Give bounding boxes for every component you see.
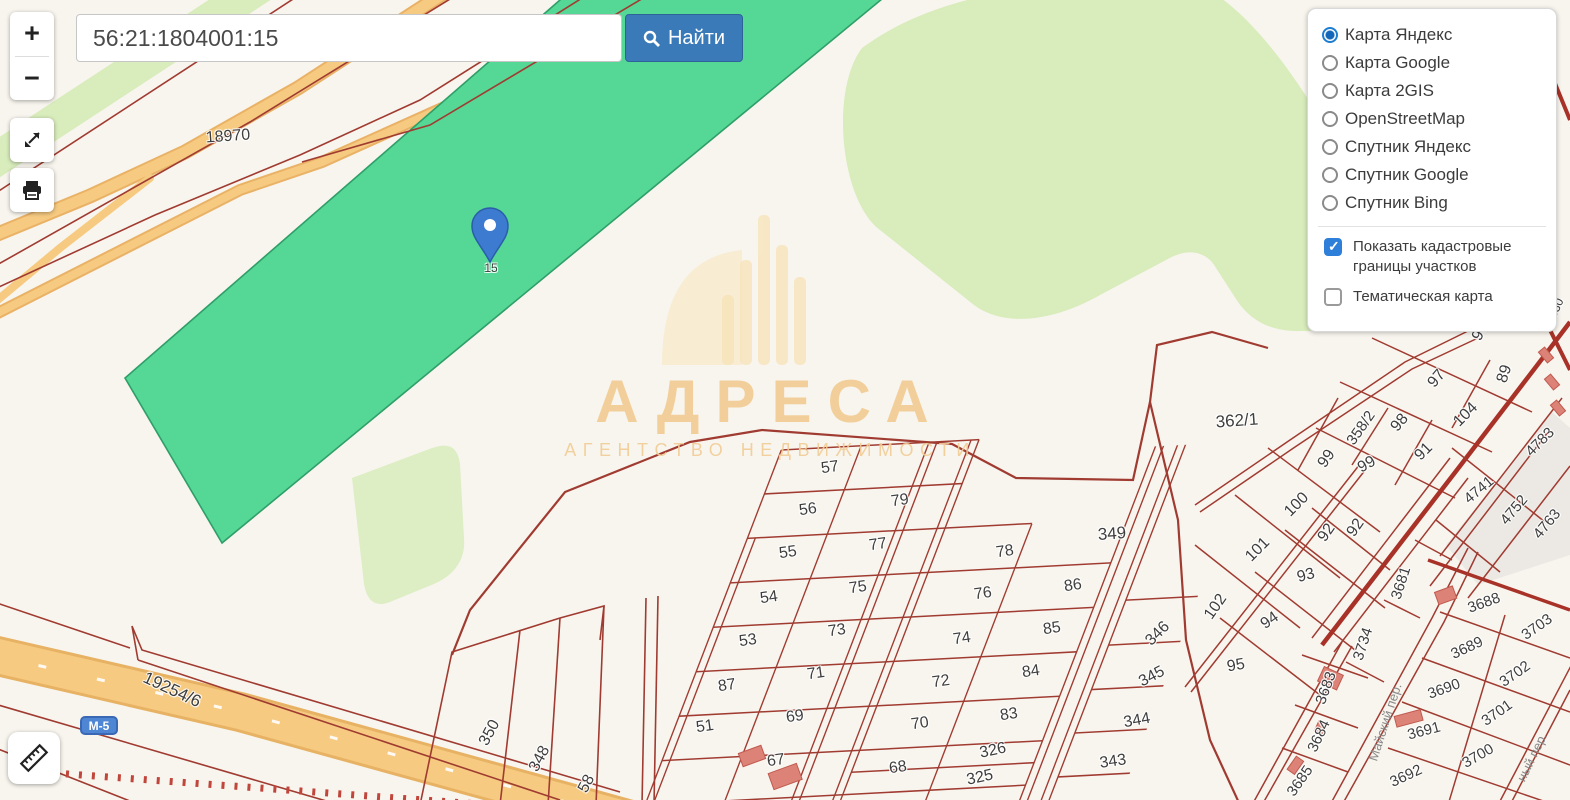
radio-icon[interactable]: [1322, 139, 1338, 155]
layer-option-1[interactable]: Карта Яндекс: [1322, 21, 1546, 49]
layer-option-label: Спутник Яндекс: [1345, 137, 1471, 157]
layer-option-label: Карта Яндекс: [1345, 25, 1452, 45]
fullscreen-icon: [20, 128, 44, 152]
measure-button[interactable]: [8, 732, 60, 784]
zoom-controls: + −: [10, 12, 54, 100]
layer-checkbox-1[interactable]: Показать кадастровые границы участков: [1322, 237, 1546, 277]
watermark-title: АДРЕСА: [595, 368, 945, 435]
layer-option-label: Спутник Bing: [1345, 193, 1448, 213]
layer-option-7[interactable]: Спутник Bing: [1322, 189, 1546, 217]
find-button-label: Найти: [668, 27, 725, 50]
radio-selected-icon[interactable]: [1322, 27, 1338, 43]
layer-checkboxes: Показать кадастровые границы участковТем…: [1322, 237, 1546, 307]
layer-option-5[interactable]: Спутник Яндекс: [1322, 133, 1546, 161]
checkbox-label: Показать кадастровые границы участков: [1353, 237, 1533, 277]
checkbox-icon[interactable]: [1324, 288, 1342, 306]
layer-option-label: Спутник Google: [1345, 165, 1469, 185]
layers-panel: Карта ЯндексКарта GoogleКарта 2GISOpenSt…: [1307, 8, 1557, 332]
search-input[interactable]: [76, 14, 622, 62]
search-icon: [643, 30, 660, 47]
fullscreen-button[interactable]: [10, 118, 54, 162]
radio-icon[interactable]: [1322, 111, 1338, 127]
checkbox-checked-icon[interactable]: [1324, 238, 1342, 256]
divider: [1318, 226, 1546, 227]
radio-icon[interactable]: [1322, 167, 1338, 183]
zoom-out-button[interactable]: −: [10, 57, 54, 101]
watermark-subtitle: АГЕНТСТВО НЕДВИЖИМОСТИ: [564, 440, 976, 460]
print-button[interactable]: [10, 168, 54, 212]
layer-options: Карта ЯндексКарта GoogleКарта 2GISOpenSt…: [1322, 21, 1546, 217]
layer-option-6[interactable]: Спутник Google: [1322, 161, 1546, 189]
ruler-icon: [17, 741, 51, 775]
highway-badge-m5: М-5: [80, 716, 118, 735]
zoom-in-button[interactable]: +: [10, 12, 54, 56]
radio-icon[interactable]: [1322, 195, 1338, 211]
layer-option-label: OpenStreetMap: [1345, 109, 1465, 129]
search-bar: Найти: [76, 14, 743, 62]
layer-option-label: Карта 2GIS: [1345, 81, 1434, 101]
layer-option-4[interactable]: OpenStreetMap: [1322, 105, 1546, 133]
layer-option-label: Карта Google: [1345, 53, 1450, 73]
layer-checkbox-2[interactable]: Тематическая карта: [1322, 287, 1546, 307]
radio-icon[interactable]: [1322, 83, 1338, 99]
checkbox-label: Тематическая карта: [1353, 287, 1493, 307]
radio-icon[interactable]: [1322, 55, 1338, 71]
printer-icon: [20, 178, 44, 202]
layer-option-2[interactable]: Карта Google: [1322, 49, 1546, 77]
layer-option-3[interactable]: Карта 2GIS: [1322, 77, 1546, 105]
find-button[interactable]: Найти: [625, 14, 743, 62]
